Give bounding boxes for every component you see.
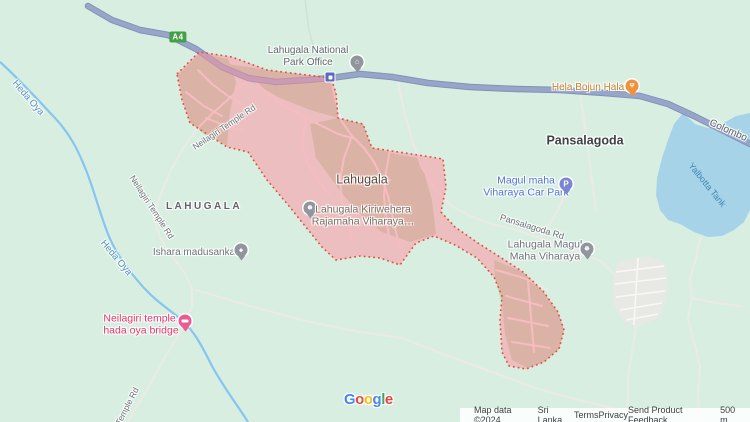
parking-pin[interactable]: P xyxy=(560,178,573,191)
temple-icon: ☸ xyxy=(584,246,589,253)
hela-bojun-pin[interactable]: Ψ xyxy=(626,80,639,93)
park-office-pin[interactable]: ⌂ xyxy=(351,56,364,69)
route-shield-text: A4 xyxy=(172,33,183,42)
magul-viharaya-pin[interactable]: ☸ xyxy=(581,243,594,256)
scale-text: 500 m xyxy=(720,405,744,422)
kiriwehera-pin[interactable]: ☸ xyxy=(304,202,317,215)
terms-link[interactable]: Terms xyxy=(574,410,599,420)
parking-icon: P xyxy=(563,180,568,189)
feedback-link[interactable]: Send Product Feedback xyxy=(628,405,720,422)
building-icon: ⌂ xyxy=(355,59,359,66)
neilagiri-temple-pin[interactable] xyxy=(179,315,192,328)
school-icon: ◆ xyxy=(239,247,243,253)
country-text: Sri Lanka xyxy=(538,405,574,422)
route-shield-a4: A4 xyxy=(169,32,186,43)
bus-stop-icon[interactable] xyxy=(325,72,336,83)
attribution-bar: Map data ©2024 Sri Lanka Terms Privacy S… xyxy=(460,408,750,422)
privacy-link[interactable]: Privacy xyxy=(598,410,628,420)
restaurant-icon: Ψ xyxy=(630,83,635,89)
bed-icon xyxy=(182,319,189,323)
map-layers xyxy=(0,0,750,422)
map-canvas[interactable]: Lahugala NationalPark Office ⌂ A4 Hela B… xyxy=(0,0,750,422)
map-data-text: Map data ©2024 xyxy=(474,405,538,422)
ishara-pin[interactable]: ◆ xyxy=(235,244,248,257)
temple-icon: ☸ xyxy=(307,205,312,212)
google-logo[interactable]: Google xyxy=(344,391,393,408)
